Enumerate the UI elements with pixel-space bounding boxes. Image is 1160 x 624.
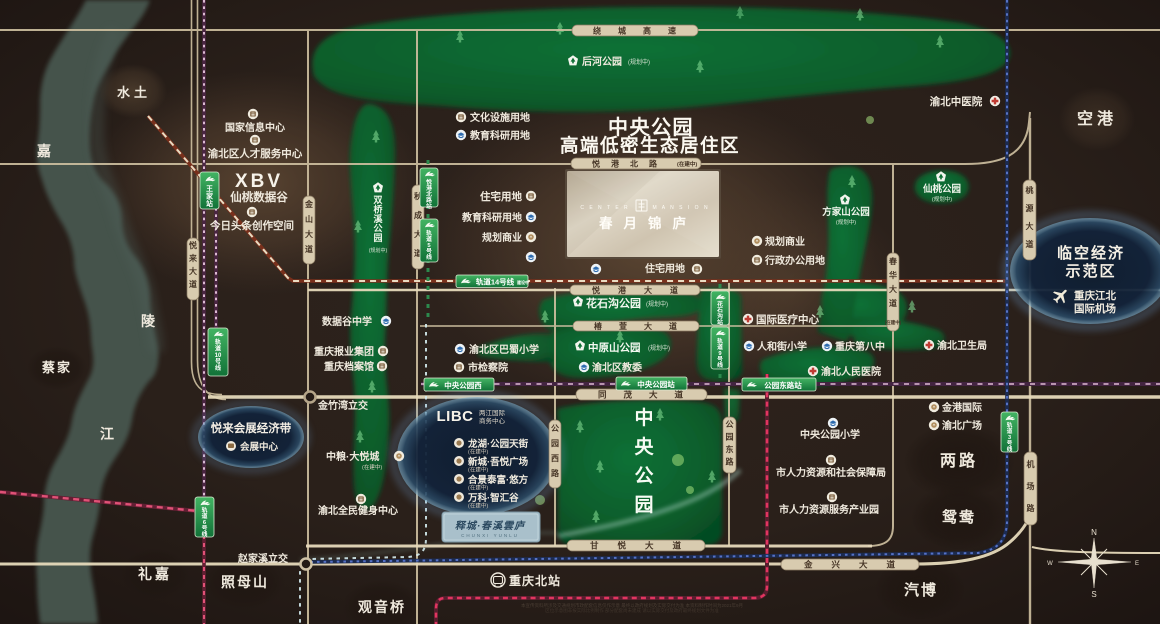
- svg-text:机场路: 机场路: [1027, 459, 1036, 513]
- svg-text:两江国际: 两江国际: [479, 408, 506, 417]
- svg-text:轨道14号线: 轨道14号线: [476, 277, 515, 287]
- svg-text:中央公园站: 中央公园站: [637, 379, 675, 389]
- svg-text:S: S: [1091, 590, 1096, 599]
- svg-text:规划商业: 规划商业: [482, 231, 522, 244]
- svg-text:区位示意图非按实际比例制作 部分配套尚未建成 请以实际交付及: 区位示意图非按实际比例制作 部分配套尚未建成 请以实际交付及政府最终规划文件为准: [545, 607, 719, 614]
- svg-text:椿萱大道: 椿萱大道: [594, 321, 694, 331]
- svg-text:水土: 水土: [117, 85, 151, 100]
- svg-text:渝北人民医院: 渝北人民医院: [821, 365, 881, 378]
- svg-text:花石沟公园: 花石沟公园: [586, 296, 641, 310]
- svg-text:示范区: 示范区: [1065, 262, 1116, 280]
- svg-text:C E N T E R: C E N T E R: [580, 205, 629, 211]
- svg-text:空港: 空港: [1077, 109, 1117, 128]
- svg-text:礼嘉: 礼嘉: [138, 566, 172, 582]
- svg-text:重庆档案馆: 重庆档案馆: [324, 360, 374, 373]
- svg-text:住宅用地: 住宅用地: [480, 190, 522, 203]
- svg-text:两路: 两路: [940, 451, 978, 470]
- svg-text:N: N: [1091, 528, 1097, 537]
- svg-text:悦港北路站: 悦港北路站: [426, 178, 432, 210]
- svg-text:渝北广场: 渝北广场: [942, 419, 982, 432]
- svg-text:重庆报业集团: 重庆报业集团: [314, 345, 374, 358]
- svg-text:后河公园: 后河公园: [582, 55, 622, 68]
- svg-text:规划商业: 规划商业: [765, 235, 805, 248]
- svg-text:王家站: 王家站: [206, 185, 213, 208]
- svg-text:赵家溪立交: 赵家溪立交: [237, 552, 288, 565]
- svg-text:中原山公园: 中原山公园: [588, 341, 641, 354]
- svg-text:同茂大道: 同茂大道: [598, 390, 700, 400]
- svg-text:住宅用地: 住宅用地: [645, 262, 685, 275]
- svg-text:(规划中): (规划中): [648, 344, 670, 352]
- svg-text:渝北区教委: 渝北区教委: [592, 361, 643, 374]
- svg-text:渝北全民健身中心: 渝北全民健身中心: [318, 504, 398, 517]
- svg-text:鸳鸯: 鸳鸯: [942, 508, 976, 526]
- svg-text:新城·吾悦广场: 新城·吾悦广场: [468, 456, 529, 468]
- svg-text:悦来会展经济带: 悦来会展经济带: [211, 421, 292, 435]
- svg-text:陵: 陵: [141, 313, 156, 329]
- svg-text:中粮·大悦城: 中粮·大悦城: [326, 450, 379, 463]
- svg-text:文化设施用地: 文化设施用地: [470, 111, 530, 124]
- svg-text:照母山: 照母山: [221, 574, 269, 590]
- svg-text:建设中: 建设中: [517, 279, 529, 285]
- svg-text:金竹湾立交: 金竹湾立交: [317, 399, 368, 412]
- svg-text:国际机场: 国际机场: [1074, 302, 1116, 315]
- svg-text:重庆江北: 重庆江北: [1074, 289, 1116, 302]
- svg-text:M A N S I O N: M A N S I O N: [652, 205, 709, 211]
- svg-text:(在建中): (在建中): [468, 502, 488, 510]
- svg-text:(规划中): (规划中): [836, 218, 856, 226]
- svg-text:春月锦庐: 春月锦庐: [598, 215, 697, 231]
- svg-text:(规划中): (规划中): [932, 195, 952, 203]
- svg-text:合景泰富·悠方: 合景泰富·悠方: [468, 474, 529, 486]
- svg-text:国际医疗中心: 国际医疗中心: [756, 313, 819, 326]
- svg-text:渝北卫生局: 渝北卫生局: [937, 339, 987, 352]
- svg-text:(规划中): (规划中): [646, 300, 668, 308]
- svg-text:释城·春溪雲庐: 释城·春溪雲庐: [455, 520, 526, 532]
- svg-text:(规划中): (规划中): [628, 58, 650, 66]
- svg-text:悦港北路: 悦港北路: [592, 159, 668, 169]
- svg-text:金兴大道: 金兴大道: [803, 560, 914, 570]
- svg-text:嘉: 嘉: [36, 143, 51, 159]
- svg-text:渝北区人才服务中心: 渝北区人才服务中心: [208, 147, 303, 160]
- svg-text:XBV: XBV: [235, 171, 283, 192]
- svg-text:高端低密生态居住区: 高端低密生态居住区: [560, 135, 740, 156]
- svg-text:临空经济: 临空经济: [1057, 244, 1125, 262]
- svg-text:CHUNXI YUNLU: CHUNXI YUNLU: [461, 533, 519, 538]
- svg-text:观音桥: 观音桥: [358, 599, 406, 615]
- svg-text:公园东路站: 公园东路站: [764, 380, 802, 390]
- svg-text:(在建中): (在建中): [362, 463, 382, 471]
- svg-text:绕城高速: 绕城高速: [593, 26, 693, 36]
- svg-text:重庆第八中: 重庆第八中: [835, 340, 885, 353]
- svg-text:中央公园小学: 中央公园小学: [800, 428, 860, 441]
- svg-text:万科·智汇谷: 万科·智汇谷: [467, 492, 519, 504]
- svg-text:(在建中): (在建中): [677, 160, 697, 168]
- svg-text:(在建中): (在建中): [468, 466, 488, 474]
- svg-text:重庆北站: 重庆北站: [509, 573, 561, 588]
- svg-text:渝北中医院: 渝北中医院: [930, 95, 983, 108]
- svg-text:仙桃公园: 仙桃公园: [923, 183, 961, 195]
- svg-text:行政办公用地: 行政办公用地: [764, 254, 825, 267]
- svg-text:LIBC: LIBC: [437, 408, 474, 425]
- svg-text:金港国际: 金港国际: [941, 401, 982, 414]
- svg-text:W: W: [1047, 561, 1053, 567]
- svg-text:江: 江: [100, 426, 114, 442]
- svg-text:市人力资源服务产业园: 市人力资源服务产业园: [779, 503, 879, 516]
- svg-text:国家信息中心: 国家信息中心: [225, 121, 285, 134]
- svg-text:蔡家: 蔡家: [41, 360, 72, 375]
- svg-text:轨道10号线: 轨道10号线: [215, 338, 222, 372]
- svg-text:E: E: [1135, 561, 1139, 567]
- svg-text:花石沟站: 花石沟站: [716, 300, 723, 326]
- svg-text:龙湖·公园天街: 龙湖·公园天街: [467, 438, 529, 450]
- svg-text:仙桃数据谷: 仙桃数据谷: [230, 190, 288, 204]
- svg-text:人和街小学: 人和街小学: [757, 340, 807, 353]
- svg-text:(在建中): (在建中): [885, 319, 902, 326]
- svg-text:教育科研用地: 教育科研用地: [469, 129, 530, 142]
- svg-text:中央公园西: 中央公园西: [444, 380, 482, 390]
- svg-text:甘悦大道: 甘悦大道: [590, 541, 700, 551]
- svg-text:市检察院: 市检察院: [468, 361, 508, 374]
- svg-text:(在建中): (在建中): [468, 484, 488, 492]
- svg-text:市人力资源和社会保障局: 市人力资源和社会保障局: [776, 466, 886, 479]
- svg-text:悦港大道: 悦港大道: [592, 285, 696, 295]
- svg-text:汽博: 汽博: [904, 581, 938, 599]
- svg-text:会展中心: 会展中心: [240, 441, 279, 453]
- svg-text:方家山公园: 方家山公园: [822, 206, 870, 218]
- svg-text:商务中心: 商务中心: [479, 416, 506, 425]
- svg-text:双桥溪公园: 双桥溪公园: [373, 195, 383, 243]
- svg-text:今日头条创作空间: 今日头条创作空间: [209, 219, 294, 232]
- svg-text:渝北区巴蜀小学: 渝北区巴蜀小学: [469, 343, 539, 356]
- svg-text:(规划中): (规划中): [369, 247, 388, 254]
- svg-text:数据谷中学: 数据谷中学: [322, 315, 372, 328]
- svg-text:(在建中): (在建中): [468, 448, 488, 456]
- svg-text:教育科研用地: 教育科研用地: [461, 211, 522, 224]
